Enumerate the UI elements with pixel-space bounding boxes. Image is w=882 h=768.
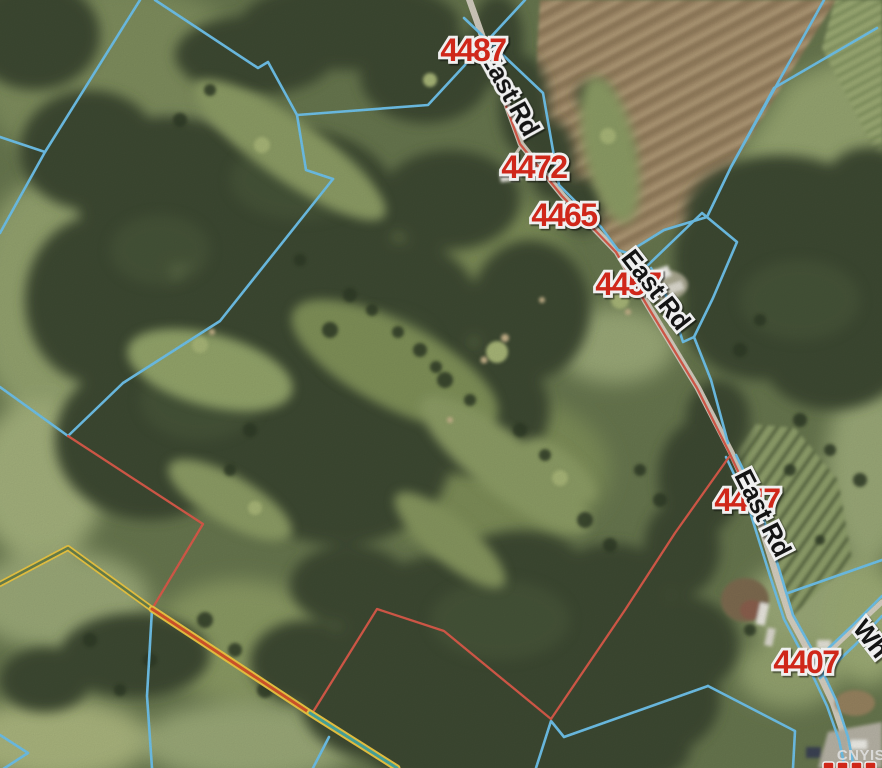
aerial-map[interactable]: 4457 4447 East Rd East Rd East Rd Wh 448…: [0, 0, 882, 768]
image-grain: [0, 0, 882, 768]
map-viewport[interactable]: 4457 4447 East Rd East Rd East Rd Wh 448…: [0, 0, 882, 768]
